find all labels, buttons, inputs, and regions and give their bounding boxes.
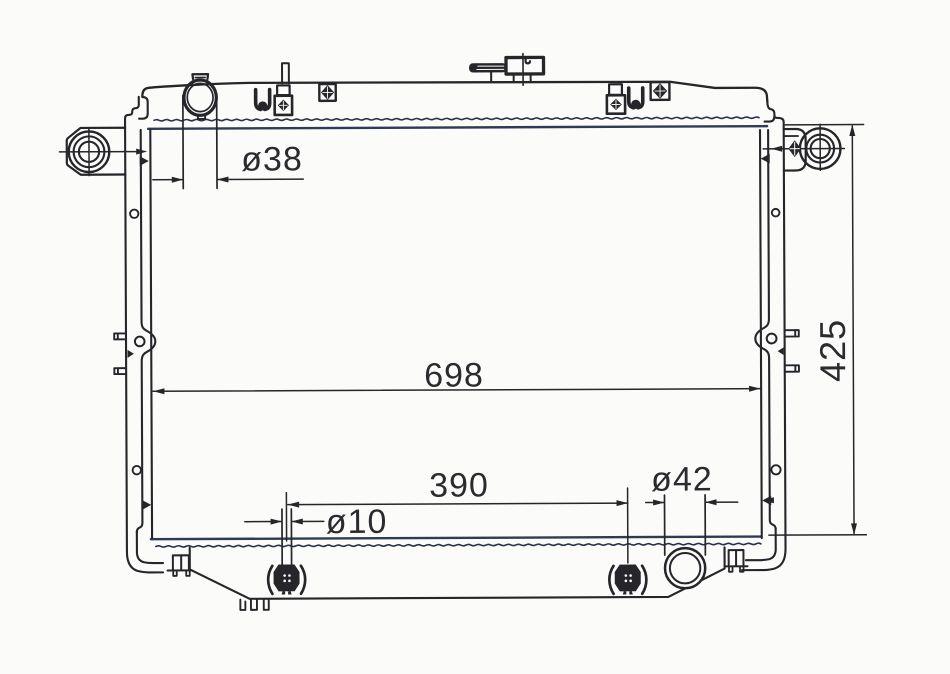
svg-text:ø42: ø42 xyxy=(651,460,713,498)
svg-text:ø10: ø10 xyxy=(326,503,388,541)
svg-text:390: 390 xyxy=(429,466,489,504)
svg-text:ø38: ø38 xyxy=(241,140,303,178)
svg-text:425: 425 xyxy=(812,319,853,382)
svg-text:698: 698 xyxy=(424,356,484,394)
